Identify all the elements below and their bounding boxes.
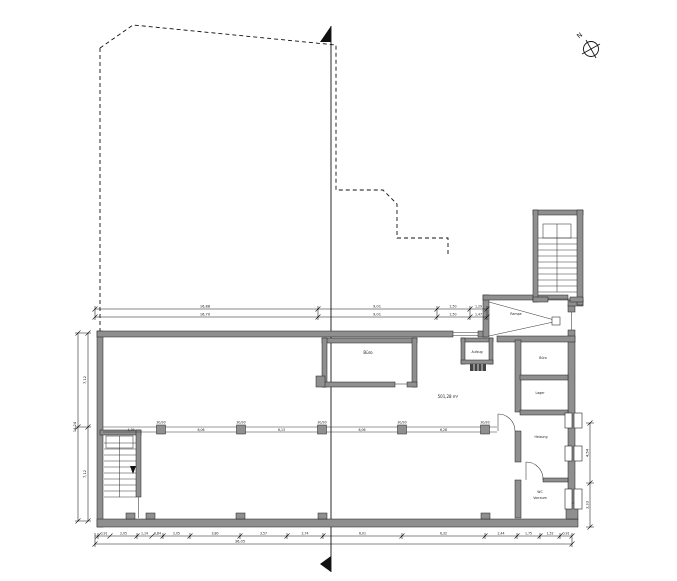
dim-bottom-5: 2,05 xyxy=(173,532,180,536)
building-walls xyxy=(97,295,583,527)
dim-bottom-3: 1,14 xyxy=(141,532,148,536)
dim-bottom-8: 2,74 xyxy=(301,532,308,536)
dim-top1-4: 1,29 xyxy=(475,305,482,309)
room-label-right3: Heizung xyxy=(535,435,548,439)
column-span-label: 6,06 xyxy=(358,428,365,432)
room-label-right2: Lager xyxy=(535,391,545,395)
section-marker-bottom-icon xyxy=(320,556,331,572)
dim-bottom-13: 1,52 xyxy=(546,532,553,536)
north-label: N xyxy=(575,31,584,40)
north-compass: N xyxy=(575,31,600,58)
dim-bottom-6: 3,80 xyxy=(211,532,218,536)
column-span-label: 6,28 xyxy=(440,428,447,432)
stairwell-bottom-left xyxy=(100,430,141,518)
section-marker-top-icon xyxy=(320,26,331,42)
dim-top2-4: 1,47 xyxy=(475,313,482,317)
floorplan-drawing: N xyxy=(0,0,677,581)
column-span-label: 6,06 xyxy=(197,428,204,432)
site-boundary-line xyxy=(100,25,448,331)
dim-top2-3: 2,50 xyxy=(449,313,456,317)
floorplan-sheet: N xyxy=(0,0,677,581)
room-label-right4a: WC xyxy=(537,490,543,494)
dim-left-lower: 7,12 xyxy=(83,470,87,478)
column-size-label: 30/30 xyxy=(236,421,245,425)
dim-left-upper: 7,12 xyxy=(83,376,87,384)
room-label-right1: Büro xyxy=(539,356,546,360)
column-size-label: 30/30 xyxy=(397,421,406,425)
bottom-wall-pilasters xyxy=(126,513,490,519)
dim-right-lower: 3,33 xyxy=(586,501,590,509)
column-size-label: 30/30 xyxy=(156,421,165,425)
column-span-label: 6,13 xyxy=(278,428,285,432)
dim-bottom-11: 2,44 xyxy=(497,532,504,536)
dim-right-upper: 4,54 xyxy=(586,448,590,457)
dim-left-outer: 14,24 xyxy=(73,421,77,432)
section-line xyxy=(320,26,331,572)
column-span-label: 4,39 xyxy=(127,428,134,432)
room-label-lift: Aufzug xyxy=(471,350,482,354)
dim-bottom-9: 6,01 xyxy=(359,532,366,536)
room-label-right4b: Vorraum xyxy=(533,496,547,500)
stairs-treads-top-right xyxy=(538,224,577,292)
column-size-label: 30/30 xyxy=(317,421,326,425)
dim-bottom-14: 0,91 xyxy=(562,532,569,536)
room-label-mid: Büro xyxy=(363,350,373,355)
column-size-label: 30/30 xyxy=(480,421,489,425)
stairwell-top-right xyxy=(533,210,583,305)
room-label-hall: 501,28 m² xyxy=(438,394,459,399)
entrance-ramp: Rampe xyxy=(489,302,560,336)
dim-bottom-12: 1,75 xyxy=(525,532,532,536)
column-row xyxy=(103,425,497,434)
dim-top2-1: 16,70 xyxy=(200,313,211,317)
dim-bottom-total: 36,05 xyxy=(235,540,245,544)
dim-bottom-10: 6,32 xyxy=(440,532,447,536)
ramp-label: Rampe xyxy=(510,312,521,316)
dim-top1-3: 2,50 xyxy=(449,305,456,309)
dim-bottom-4: 0,84 xyxy=(154,532,161,536)
dim-bottom-7: 3,57 xyxy=(260,532,267,536)
dim-bottom-2: 2,05 xyxy=(120,532,127,536)
dim-bottom-1: 0,91 xyxy=(100,532,107,536)
dim-top2-2: 9,01 xyxy=(373,313,381,317)
dim-top1-2: 9,01 xyxy=(373,305,381,309)
dim-top1-1: 16,88 xyxy=(200,305,211,309)
